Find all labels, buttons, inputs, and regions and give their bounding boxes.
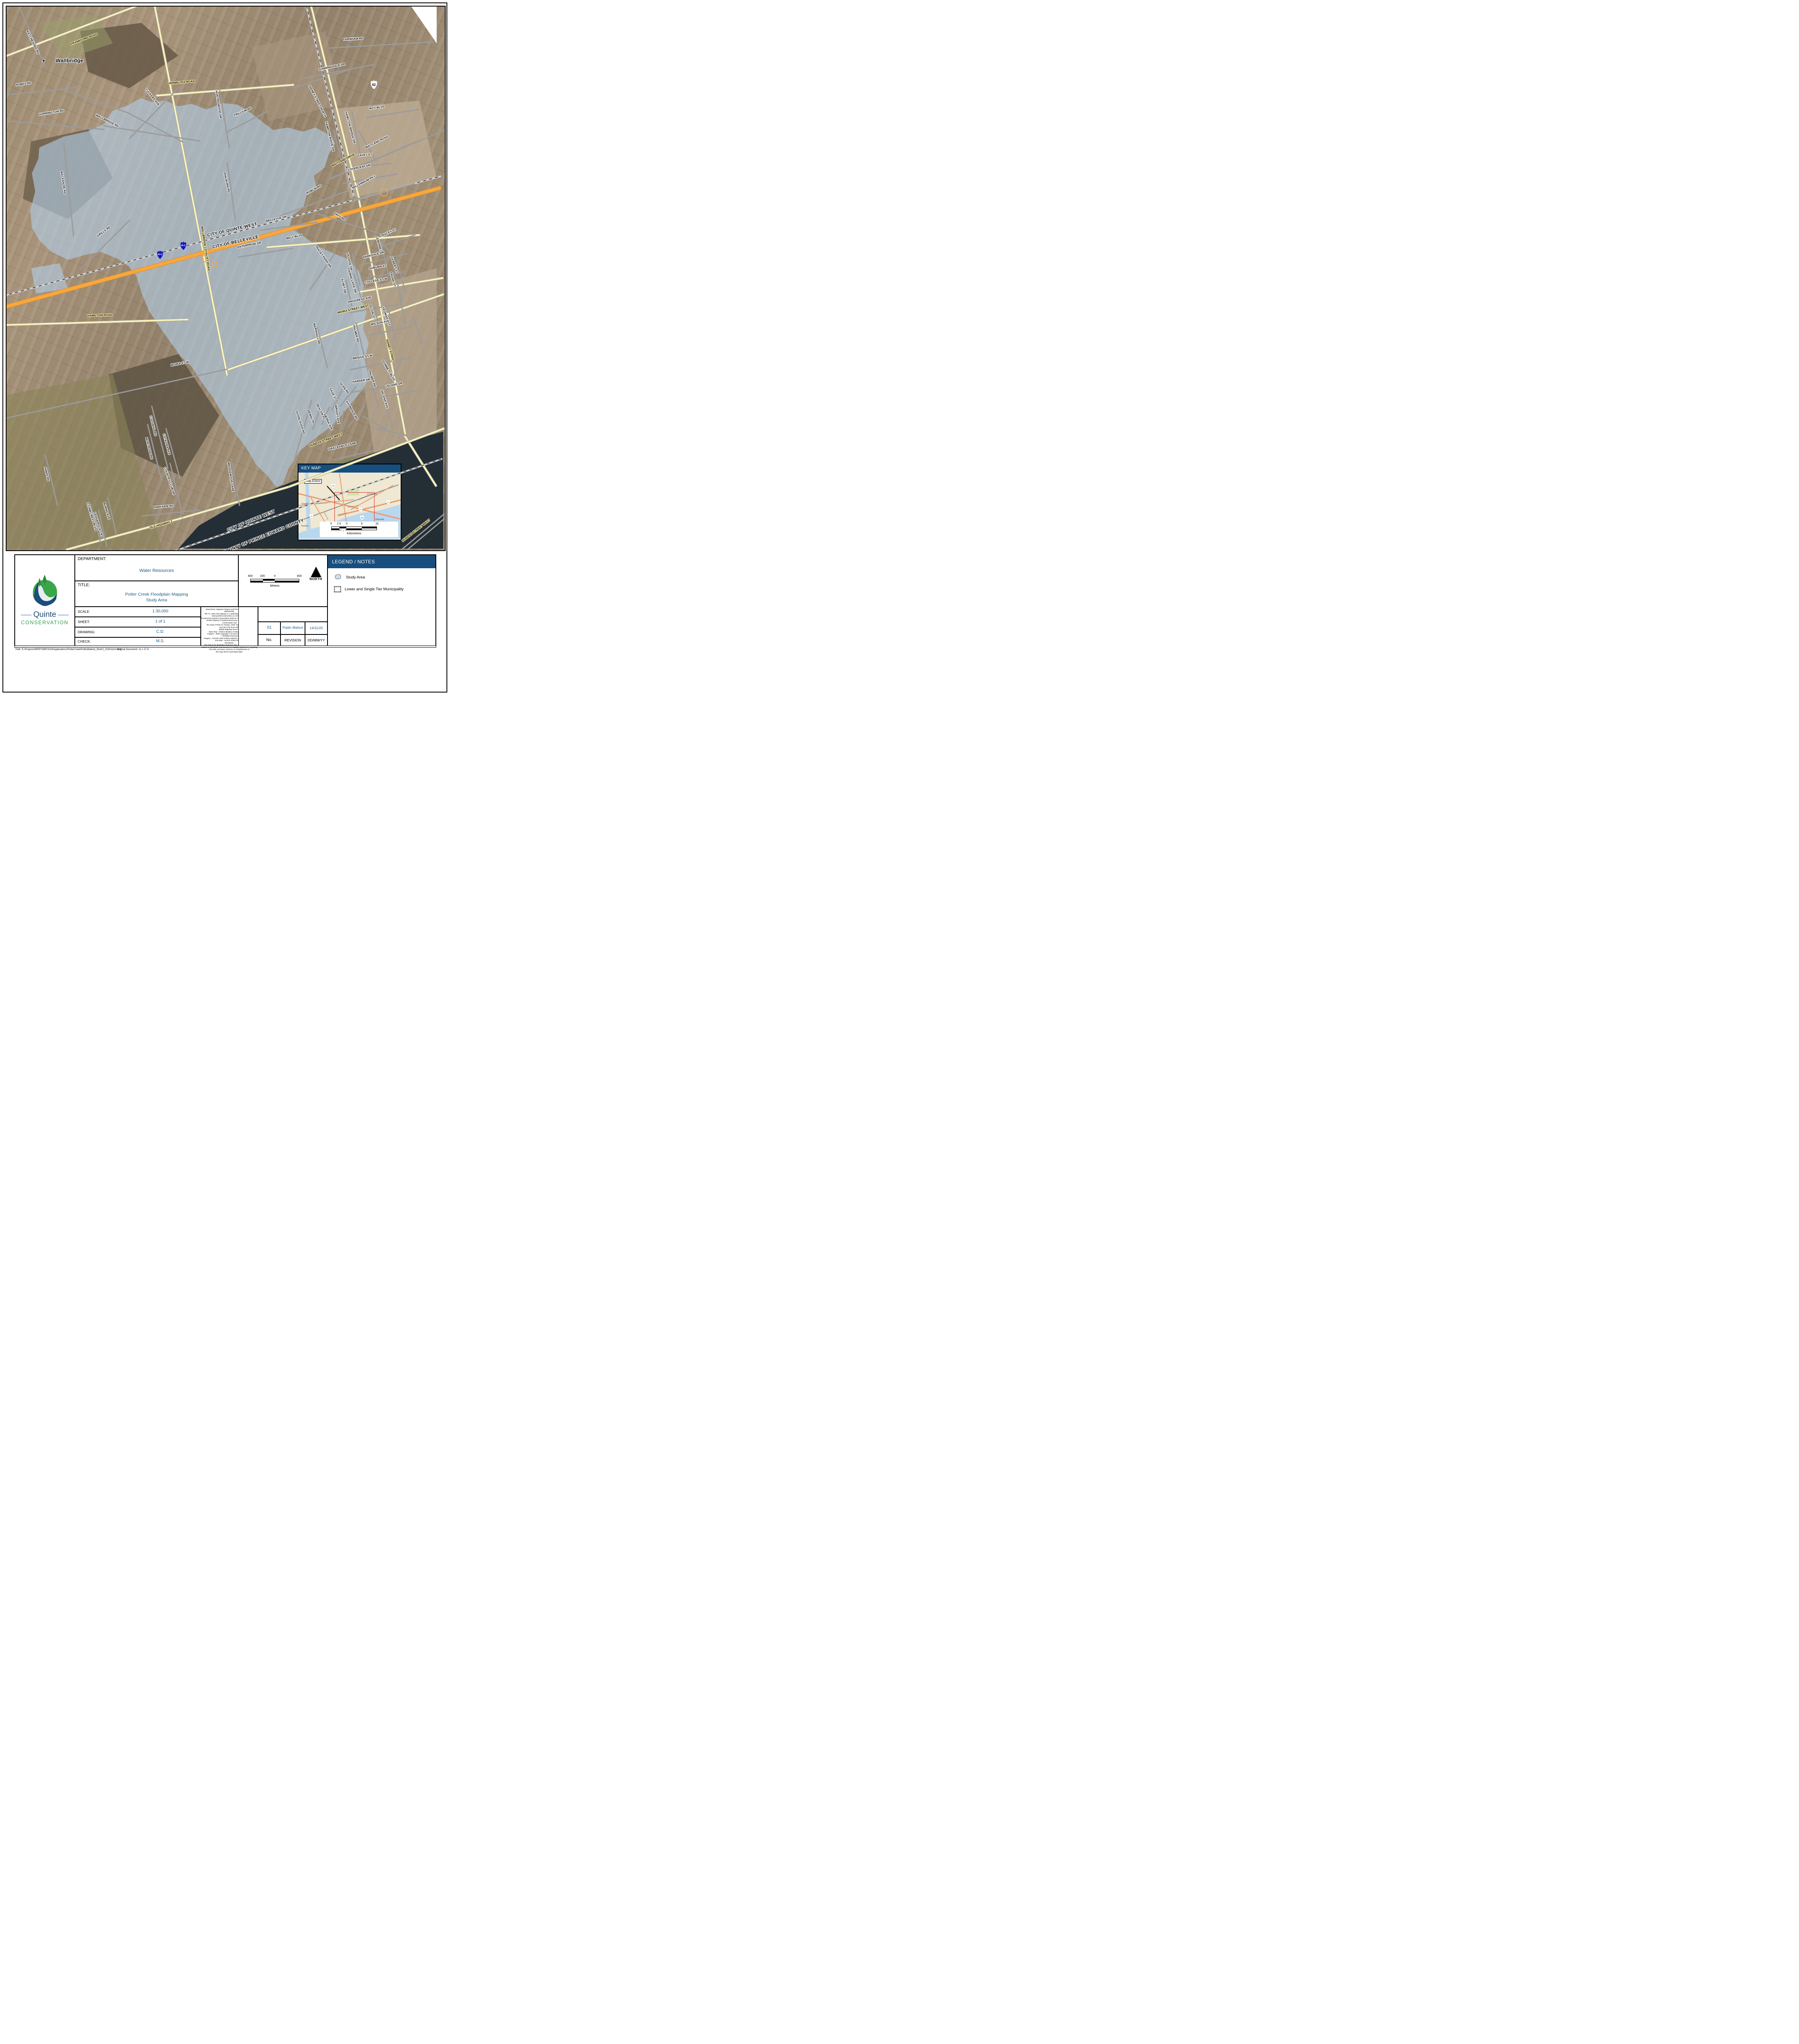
quinte-conservation-logo: Quinte CONSERVATION — [15, 555, 74, 645]
study-area-swatch-icon — [334, 574, 342, 581]
legend-item: Lower and Single Tier Municipality — [334, 587, 435, 592]
no-header-cell: No. — [258, 634, 280, 646]
scalebar-north-cell: 400 200 0 400 Metres NORTH — [238, 555, 327, 607]
scalebar-tick: 10 — [375, 522, 379, 525]
key-map-body: Map Extent 5 2.5 0 5 10 Kilomet — [298, 473, 401, 539]
scalebar-tick: 2.5 — [337, 522, 341, 525]
logo-name-row: Quinte — [21, 610, 69, 619]
revision-no-value-cell: 01 — [258, 622, 280, 634]
revision-date: 14/11/25 — [305, 626, 327, 630]
map-frame: Wallbridge KEY MAP — [6, 6, 446, 551]
date-header-cell: DD/MM/YY — [305, 634, 327, 646]
map-title-line1: Potter Creek Floodplain Mapping — [75, 592, 238, 597]
scalebar-unit: Metres — [270, 584, 280, 587]
logo-name: Quinte — [34, 610, 56, 619]
no-header: No. — [258, 638, 280, 642]
scalebar-tick: 400 — [297, 575, 302, 578]
sheet-label: SHEET: — [78, 620, 90, 624]
key-map-header: KEY MAP — [298, 464, 401, 473]
municipality-swatch-icon — [334, 587, 341, 592]
date-format-header: DD/MM/YY — [305, 638, 327, 642]
check-cell: CHECK: M.S. — [75, 637, 201, 646]
legend-cell: LEGEND / NOTES Study AreaLower and Singl… — [327, 555, 436, 646]
legend-item: Study Area — [334, 574, 435, 581]
department-cell: DEPARTMENT: Water Resources — [75, 555, 238, 581]
revision-header: REVISION — [281, 638, 305, 642]
north-arrow: NORTH — [310, 567, 322, 581]
keymap-road-label: RCAF Rd — [323, 512, 329, 520]
sheet-cell: SHEET: 1 of 1 — [75, 617, 201, 627]
logo-subname: CONSERVATION — [21, 620, 69, 625]
legend-item-label: Study Area — [346, 575, 365, 580]
scalebar-tick: 5 — [330, 522, 332, 525]
highway-ramp-icon — [211, 261, 218, 268]
north-label: NORTH — [310, 577, 322, 581]
highway-ramp-icon — [380, 189, 388, 197]
keymap-town-label: Belleville — [375, 518, 384, 521]
check-label: CHECK: — [78, 639, 91, 643]
revision-header-cell: REVISION — [280, 634, 305, 646]
map-title-line2: Study Area — [75, 598, 238, 603]
revision-no: 01 — [258, 625, 280, 630]
drawing-cell: DRAWING: C.D. — [75, 627, 201, 637]
north-arrow-icon — [311, 567, 321, 577]
department-label: DEPARTMENT: — [78, 557, 106, 561]
revision-date-cell: 14/11/25 — [305, 622, 327, 634]
map-canvas: Wallbridge KEY MAP — [7, 7, 445, 550]
key-map-scalebar: 5 2.5 0 5 10 Kilometres — [320, 522, 398, 537]
keymap-town-label: Trenton — [301, 525, 309, 527]
logo-mark-icon — [28, 575, 62, 609]
title-cell: TITLE: Potter Creek Floodplain Mapping S… — [75, 581, 238, 607]
empty-cell — [258, 607, 327, 622]
logo-cell: Quinte CONSERVATION — [15, 555, 75, 646]
scale-label: SCALE: — [78, 610, 90, 614]
scalebar-tick: 5 — [361, 522, 363, 525]
department-value: Water Resources — [75, 568, 238, 573]
legend-item-label: Lower and Single Tier Municipality — [345, 587, 404, 592]
scalebar-tick: 0 — [274, 575, 276, 578]
scale-cell: SCALE: 1:30,000 — [75, 607, 201, 617]
map-sheet: Wallbridge KEY MAP — [0, 0, 450, 695]
scalebar-tick: 0 — [346, 522, 348, 525]
document-path: Path: E:\Projects\WR\FH\MP\2024\Applicat… — [16, 648, 121, 651]
title-block: Quinte CONSERVATION DEPARTMENT: Water Re… — [14, 554, 436, 648]
title-label: TITLE: — [78, 583, 90, 587]
empty-cell — [238, 607, 258, 646]
drawing-label: DRAWING: — [78, 630, 95, 634]
metres-scalebar: 400 200 0 400 Metres — [250, 575, 299, 591]
revision-desc-cell: Public Mailout — [280, 622, 305, 634]
original-document-size: Original Document: 11 x 17 in — [117, 648, 149, 651]
revision-desc: Public Mailout — [281, 626, 305, 630]
keymap-highway-shield-icon: 22 — [331, 483, 336, 489]
scalebar-tick: 200 — [260, 575, 265, 578]
legend-header: LEGEND / NOTES — [328, 555, 435, 568]
town-label-wallbridge: Wallbridge — [56, 58, 83, 64]
scalebar-unit: Kilometres — [347, 531, 361, 535]
legend-items: Study AreaLower and Single Tier Municipa… — [328, 574, 435, 592]
scalebar-tick: 400 — [248, 575, 253, 578]
